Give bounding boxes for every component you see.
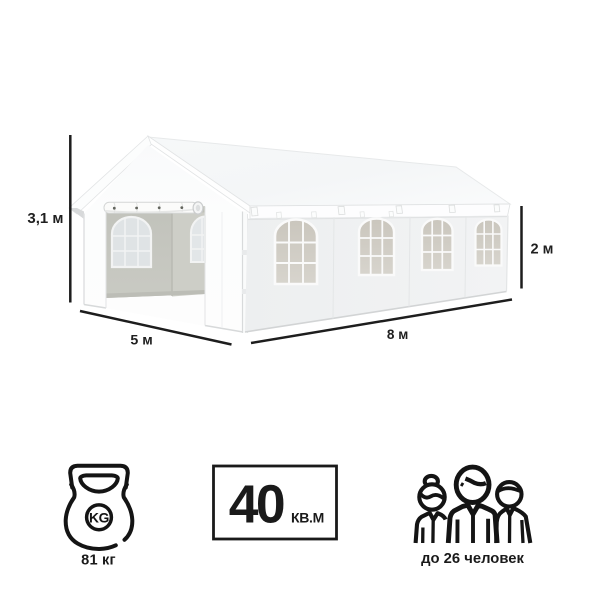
svg-text:5 м: 5 м [130, 333, 152, 349]
svg-text:81 кг: 81 кг [81, 553, 116, 569]
svg-text:KG: KG [89, 510, 109, 525]
svg-text:КВ.М: КВ.М [291, 510, 324, 526]
svg-text:8 м: 8 м [387, 327, 408, 342]
svg-text:40: 40 [229, 476, 284, 535]
svg-text:2 м: 2 м [531, 242, 554, 258]
svg-text:3,1 м: 3,1 м [27, 210, 63, 227]
svg-text:до 26 человек: до 26 человек [421, 551, 524, 567]
